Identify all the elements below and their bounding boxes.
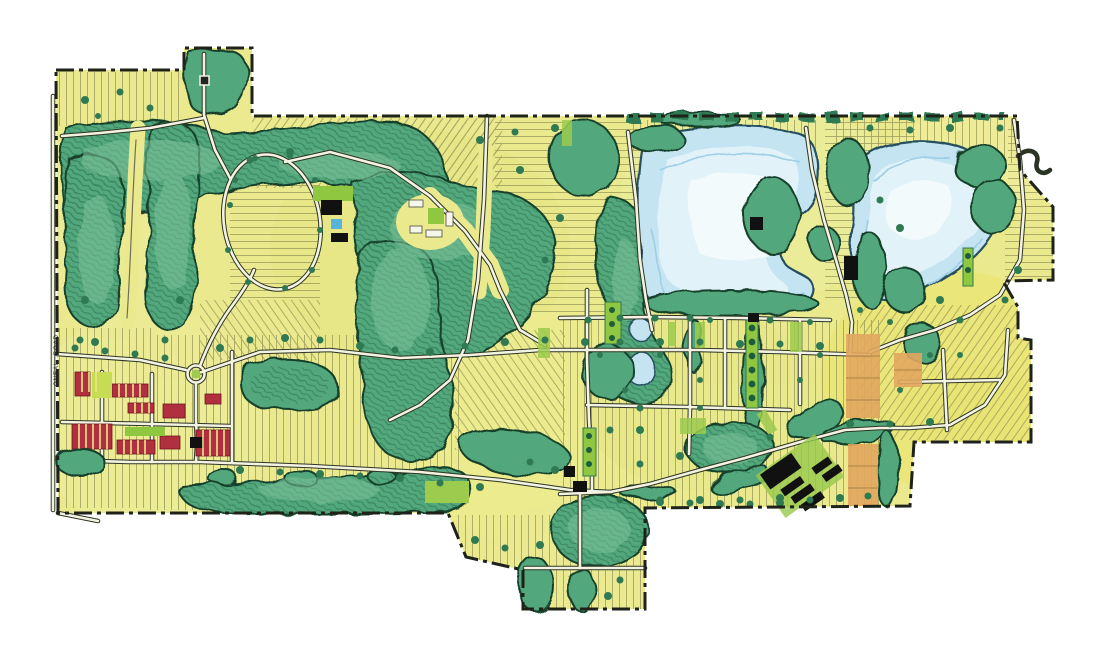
svg-text:ONEAL ROAD: ONEAL ROAD [54, 334, 60, 386]
